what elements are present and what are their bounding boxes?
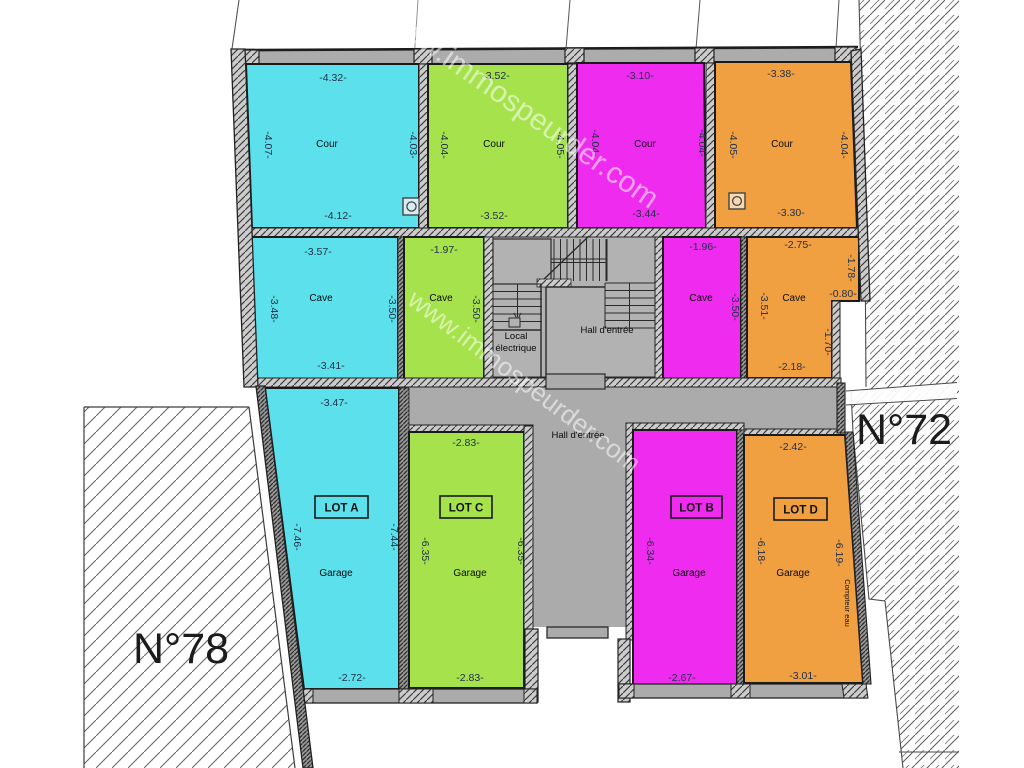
svg-text:-4.03-: -4.03-: [407, 131, 419, 159]
svg-text:-3.48-: -3.48-: [268, 295, 280, 323]
svg-text:Compteur eau: Compteur eau: [843, 579, 852, 627]
svg-text:N°78: N°78: [133, 625, 229, 673]
svg-text:-4.04-: -4.04-: [438, 131, 450, 159]
svg-text:Garage: Garage: [453, 568, 487, 579]
svg-text:LOT C: LOT C: [449, 503, 484, 515]
svg-text:-1.78-: -1.78-: [845, 254, 857, 282]
svg-text:Cour: Cour: [634, 139, 656, 150]
svg-text:LOT A: LOT A: [324, 503, 358, 515]
svg-text:-1.96-: -1.96-: [689, 241, 717, 253]
svg-text:Local: Local: [505, 331, 528, 342]
svg-text:-6.34-: -6.34-: [644, 537, 656, 565]
svg-text:-0.80-: -0.80-: [829, 288, 857, 300]
svg-text:Hall d'entrée: Hall d'entrée: [580, 325, 633, 336]
svg-text:Cave: Cave: [689, 293, 713, 304]
svg-text:-4.07-: -4.07-: [262, 131, 274, 159]
svg-text:Garage: Garage: [672, 568, 706, 579]
svg-text:-2.67-: -2.67-: [668, 672, 696, 684]
svg-text:Cour: Cour: [483, 139, 505, 150]
svg-text:-4.32-: -4.32-: [319, 72, 347, 84]
svg-text:-2.18-: -2.18-: [778, 361, 806, 373]
svg-text:-3.50-: -3.50-: [386, 295, 398, 323]
svg-text:-3.30-: -3.30-: [777, 207, 805, 219]
svg-text:-7.46-: -7.46-: [291, 523, 303, 551]
svg-text:Garage: Garage: [319, 568, 353, 579]
svg-text:-3.50-: -3.50-: [729, 293, 741, 321]
svg-text:Cave: Cave: [782, 293, 806, 304]
svg-text:LOT D: LOT D: [783, 505, 818, 517]
svg-text:-2.83-: -2.83-: [456, 672, 484, 684]
svg-text:-2.75-: -2.75-: [784, 239, 812, 251]
svg-text:-4.04-: -4.04-: [838, 131, 850, 159]
svg-text:-3.51-: -3.51-: [758, 292, 770, 320]
svg-text:N°72: N°72: [856, 406, 952, 454]
svg-text:-3.10-: -3.10-: [626, 70, 654, 82]
svg-text:-3.57-: -3.57-: [304, 246, 332, 258]
svg-text:-3.41-: -3.41-: [317, 360, 345, 372]
svg-text:-2.42-: -2.42-: [779, 441, 807, 453]
svg-text:-4.12-: -4.12-: [324, 210, 352, 222]
svg-text:Cour: Cour: [771, 139, 793, 150]
svg-text:-6.18-: -6.18-: [755, 537, 767, 565]
svg-text:Cour: Cour: [316, 139, 338, 150]
svg-text:-6.19-: -6.19-: [833, 539, 845, 567]
svg-text:-4.05-: -4.05-: [727, 131, 739, 159]
svg-text:-3.01-: -3.01-: [789, 670, 817, 682]
svg-text:-3.47-: -3.47-: [320, 397, 348, 409]
svg-text:-3.52-: -3.52-: [480, 210, 508, 222]
svg-text:-2.72-: -2.72-: [338, 672, 366, 684]
svg-text:-3.50-: -3.50-: [470, 295, 482, 323]
svg-text:-6.35-: -6.35-: [419, 537, 431, 565]
svg-text:LOT B: LOT B: [679, 503, 714, 515]
svg-text:-1.97-: -1.97-: [430, 244, 458, 256]
svg-text:Cave: Cave: [309, 293, 333, 304]
svg-text:Garage: Garage: [776, 568, 810, 579]
svg-text:-2.83-: -2.83-: [452, 437, 480, 449]
svg-text:-7.44-: -7.44-: [388, 523, 400, 551]
svg-text:-3.38-: -3.38-: [767, 68, 795, 80]
